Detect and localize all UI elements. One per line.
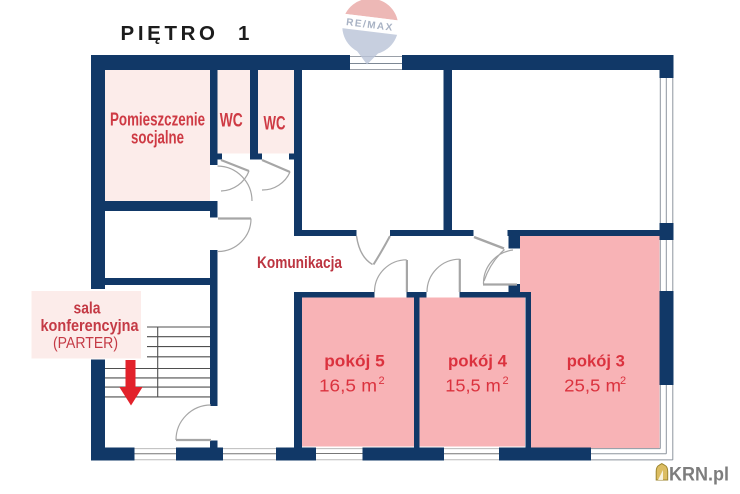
- svg-text:PIĘTRO: PIĘTRO: [121, 22, 220, 45]
- svg-text:WC: WC: [220, 110, 243, 132]
- svg-text:WC: WC: [264, 112, 286, 134]
- svg-text:15,5 m: 15,5 m: [445, 375, 501, 395]
- svg-text:1: 1: [238, 22, 249, 45]
- svg-text:pokój 4: pokój 4: [448, 351, 508, 370]
- svg-text:konferencyjna: konferencyjna: [41, 316, 139, 335]
- svg-text:socjalne: socjalne: [131, 127, 184, 147]
- svg-text:Pomieszczenie: Pomieszczenie: [110, 109, 205, 129]
- svg-text:sala: sala: [74, 299, 101, 318]
- svg-text:Komunikacja: Komunikacja: [257, 254, 343, 272]
- svg-text:2: 2: [620, 375, 626, 387]
- svg-text:pokój 3: pokój 3: [567, 351, 625, 370]
- svg-text:16,5 m: 16,5 m: [319, 375, 377, 395]
- svg-text:pokój 5: pokój 5: [324, 351, 385, 370]
- svg-text:2: 2: [378, 375, 384, 387]
- svg-text:25,5 m: 25,5 m: [564, 375, 621, 395]
- svg-text:2: 2: [502, 375, 508, 387]
- svg-text:KRN.pl: KRN.pl: [669, 463, 729, 485]
- svg-text:(PARTER): (PARTER): [53, 335, 118, 352]
